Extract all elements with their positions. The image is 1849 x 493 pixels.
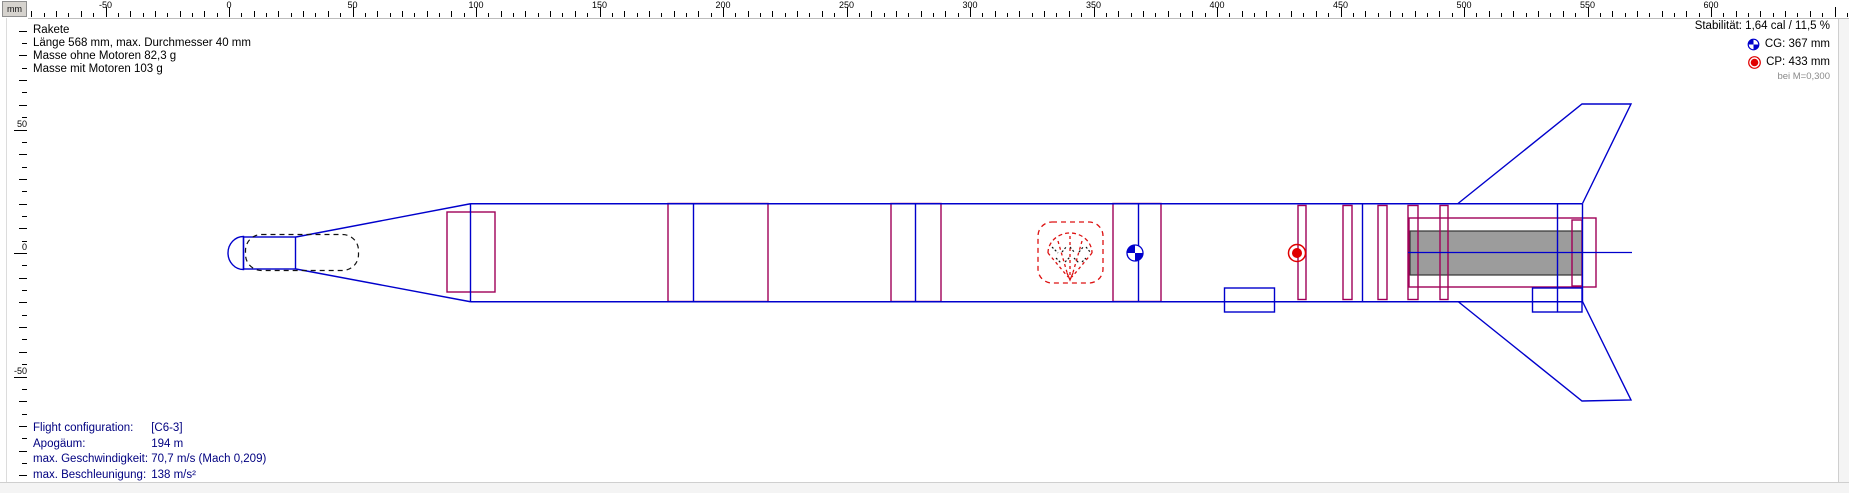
h-ruler-tick — [1637, 11, 1638, 17]
cp-legend-row: CP: 433 mm — [1695, 53, 1830, 71]
h-ruler-tick — [254, 11, 255, 17]
v-ruler-tick — [19, 451, 27, 452]
cp-value: CP: 433 mm — [1766, 56, 1830, 68]
h-ruler-label: 350 — [1077, 0, 1111, 10]
h-ruler-tick — [180, 11, 181, 17]
h-ruler-tick — [464, 13, 465, 17]
h-ruler-tick — [167, 13, 168, 17]
h-ruler-tick — [1612, 11, 1613, 17]
h-ruler-tick — [414, 13, 415, 17]
h-ruler-tick — [1513, 11, 1514, 17]
h-ruler-label: 50 — [336, 0, 370, 10]
h-ruler-tick — [192, 13, 193, 17]
cg-marker — [1127, 245, 1143, 261]
h-ruler-tick — [1748, 13, 1749, 17]
h-ruler-tick — [1081, 13, 1082, 17]
h-ruler-tick — [735, 13, 736, 17]
h-ruler-tick — [451, 11, 452, 17]
v-ruler-tick — [22, 414, 27, 415]
h-ruler-label: 0 — [212, 0, 246, 10]
h-ruler-label: 550 — [1571, 0, 1605, 10]
h-ruler-tick — [93, 13, 94, 17]
h-ruler-tick — [760, 13, 761, 17]
h-ruler-tick — [143, 13, 144, 17]
h-ruler-tick — [1192, 11, 1193, 17]
h-ruler-tick — [315, 13, 316, 17]
v-ruler-tick — [22, 315, 27, 316]
h-ruler-tick — [278, 11, 279, 17]
v-ruler-tick — [22, 389, 27, 390]
h-ruler-tick — [785, 13, 786, 17]
v-ruler-tick — [19, 80, 27, 81]
h-ruler-tick — [921, 11, 922, 17]
h-ruler-tick — [1427, 13, 1428, 17]
v-ruler-tick — [19, 204, 27, 205]
h-ruler-tick — [1353, 13, 1354, 17]
design-canvas[interactable] — [0, 0, 1849, 492]
h-ruler-tick — [402, 11, 403, 17]
tube-coupler-1[interactable] — [668, 204, 768, 302]
h-ruler-tick — [834, 13, 835, 17]
h-ruler-tick — [1069, 11, 1070, 17]
h-ruler-tick — [303, 11, 304, 17]
h-ruler-tick — [748, 11, 749, 17]
h-ruler-tick — [575, 11, 576, 17]
h-ruler-tick — [1476, 13, 1477, 17]
h-ruler-tick — [1452, 13, 1453, 17]
apogee-value: 194 m — [151, 438, 183, 450]
v-ruler-tick — [19, 228, 27, 229]
max-velocity-value: 70,7 m/s (Mach 0,209) — [151, 453, 266, 465]
h-ruler-label: 450 — [1324, 0, 1358, 10]
vertical-scrollbar-track[interactable] — [1838, 18, 1849, 482]
v-ruler-tick — [19, 278, 27, 279]
h-ruler-tick — [217, 13, 218, 17]
h-ruler-label: 300 — [953, 0, 987, 10]
h-ruler-tick — [1131, 13, 1132, 17]
v-ruler-tick — [22, 167, 27, 168]
flight-data-block: Flight configuration: [C6-3] Apogäum: 19… — [33, 421, 266, 483]
centering-ring-3[interactable] — [1378, 206, 1387, 300]
nose-cone-dashed-outline[interactable] — [246, 235, 359, 271]
h-ruler-tick — [377, 11, 378, 17]
flight-config-label: Flight configuration: — [33, 421, 148, 437]
fin-top[interactable] — [1458, 104, 1631, 204]
h-ruler-tick — [1415, 11, 1416, 17]
h-ruler-tick — [390, 13, 391, 17]
v-ruler-tick — [19, 31, 27, 32]
h-ruler-label: 400 — [1200, 0, 1234, 10]
h-ruler-tick — [1402, 13, 1403, 17]
h-ruler-tick — [241, 13, 242, 17]
cg-icon — [1747, 38, 1760, 51]
ruler-unit-label: mm — [2, 1, 27, 17]
h-ruler-tick — [1563, 11, 1564, 17]
h-ruler-tick — [1365, 11, 1366, 17]
vertical-ruler: 500-50 — [0, 18, 28, 482]
h-ruler-tick — [1760, 11, 1761, 17]
v-ruler-tick — [19, 426, 27, 427]
transition-cone[interactable] — [296, 204, 471, 302]
h-ruler-tick — [204, 11, 205, 17]
cp-marker — [1289, 245, 1306, 262]
h-ruler-tick — [525, 11, 526, 17]
h-ruler-tick — [674, 11, 675, 17]
h-ruler-label: 100 — [459, 0, 493, 10]
h-ruler-tick — [871, 11, 872, 17]
h-ruler-tick — [550, 11, 551, 17]
v-ruler-tick — [22, 216, 27, 217]
parachute[interactable] — [1038, 222, 1103, 283]
h-ruler-tick — [1662, 11, 1663, 17]
h-ruler-tick — [56, 11, 57, 17]
h-ruler-tick — [328, 11, 329, 17]
v-ruler-tick — [19, 302, 27, 303]
h-ruler-tick — [1699, 13, 1700, 17]
v-ruler-tick — [19, 55, 27, 56]
v-ruler-tick — [22, 68, 27, 69]
h-ruler-tick — [1143, 11, 1144, 17]
h-ruler-tick — [1007, 13, 1008, 17]
stability-legend: Stabilität: 1,64 cal / 11,5 % CG: 367 mm… — [1695, 20, 1830, 84]
rocket-drawing — [228, 104, 1632, 401]
h-ruler-label: 150 — [583, 0, 617, 10]
v-ruler-tick — [19, 401, 27, 402]
design-title: Rakete — [33, 24, 251, 37]
design-info-block: Rakete Länge 568 mm, max. Durchmesser 40… — [33, 24, 251, 76]
launch-lug-1[interactable] — [1225, 288, 1275, 312]
h-ruler-tick — [1242, 11, 1243, 17]
h-ruler-tick — [1056, 13, 1057, 17]
h-ruler-tick — [155, 11, 156, 17]
h-ruler-tick — [291, 13, 292, 17]
h-ruler-tick — [1526, 13, 1527, 17]
h-ruler-tick — [1032, 13, 1033, 17]
v-ruler-tick — [14, 253, 27, 254]
v-ruler-tick — [19, 352, 27, 353]
h-ruler-tick — [637, 13, 638, 17]
h-ruler-tick — [1736, 11, 1737, 17]
h-ruler-tick — [501, 11, 502, 17]
h-ruler-tick — [513, 13, 514, 17]
v-ruler-tick — [22, 43, 27, 44]
h-ruler-tick — [538, 13, 539, 17]
v-ruler-tick — [22, 191, 27, 192]
ruler-unit-box: mm — [0, 0, 28, 18]
parachute-shroud-lines — [1048, 236, 1092, 279]
h-ruler-tick — [1723, 13, 1724, 17]
h-ruler-tick — [1810, 11, 1811, 17]
h-ruler-tick — [365, 13, 366, 17]
h-ruler-label: 250 — [830, 0, 864, 10]
v-ruler-tick — [19, 105, 27, 106]
h-ruler-tick — [1019, 11, 1020, 17]
apogee-label: Apogäum: — [33, 437, 148, 453]
v-ruler-tick — [19, 475, 27, 476]
h-ruler-tick — [427, 11, 428, 17]
h-ruler-tick — [884, 13, 885, 17]
h-ruler-tick — [1118, 11, 1119, 17]
flight-config-value: [C6-3] — [151, 422, 182, 434]
fin-bottom[interactable] — [1458, 302, 1631, 402]
h-ruler-tick — [1773, 13, 1774, 17]
h-ruler-tick — [1254, 13, 1255, 17]
v-ruler-tick — [22, 339, 27, 340]
h-ruler-tick — [1674, 13, 1675, 17]
h-ruler-tick — [1316, 11, 1317, 17]
h-ruler-tick — [995, 11, 996, 17]
apogee-row: Apogäum: 194 m — [33, 437, 266, 453]
h-ruler-tick — [1649, 13, 1650, 17]
v-ruler-tick — [19, 327, 27, 328]
h-ruler-label: 500 — [1447, 0, 1481, 10]
v-ruler-tick — [14, 377, 27, 378]
v-ruler-tick — [22, 463, 27, 464]
h-ruler-tick — [859, 13, 860, 17]
h-ruler-tick — [1205, 13, 1206, 17]
h-ruler-tick — [1489, 11, 1490, 17]
h-ruler-tick — [488, 13, 489, 17]
h-ruler-tick — [982, 13, 983, 17]
h-ruler-tick — [686, 13, 687, 17]
h-ruler-tick — [587, 13, 588, 17]
h-ruler-tick — [809, 13, 810, 17]
h-ruler-tick — [439, 13, 440, 17]
h-ruler-tick — [908, 13, 909, 17]
h-ruler-tick — [1155, 13, 1156, 17]
h-ruler-label: 200 — [706, 0, 740, 10]
h-ruler-tick — [340, 13, 341, 17]
h-ruler-tick — [1785, 11, 1786, 17]
h-ruler-tick — [945, 11, 946, 17]
h-ruler-tick — [1378, 13, 1379, 17]
h-ruler-tick — [1168, 11, 1169, 17]
h-ruler-tick — [1625, 13, 1626, 17]
v-ruler-label: 0 — [1, 242, 27, 252]
shock-cord-marks — [1052, 246, 1091, 263]
h-ruler-tick — [624, 11, 625, 17]
h-ruler-tick — [1686, 11, 1687, 17]
h-ruler-tick — [1822, 13, 1823, 17]
cg-value: CG: 367 mm — [1765, 38, 1830, 50]
h-ruler-tick — [1538, 11, 1539, 17]
h-ruler-tick — [1390, 11, 1391, 17]
h-ruler-tick — [1550, 13, 1551, 17]
v-ruler-tick — [22, 92, 27, 93]
h-ruler-tick — [1291, 11, 1292, 17]
h-ruler-tick — [933, 13, 934, 17]
h-ruler-tick — [958, 13, 959, 17]
rocket-design-app: { "header": { "title": "Rakete", "info_l… — [0, 0, 1849, 492]
h-ruler-tick — [661, 13, 662, 17]
v-ruler-tick — [14, 130, 27, 131]
h-ruler-tick — [1501, 13, 1502, 17]
h-ruler-tick — [1229, 13, 1230, 17]
h-ruler-tick — [896, 11, 897, 17]
v-ruler-tick — [19, 179, 27, 180]
v-ruler-tick — [22, 290, 27, 291]
h-ruler-tick — [1044, 11, 1045, 17]
mach-note: bei M=0,300 — [1695, 71, 1830, 84]
h-ruler-tick — [711, 13, 712, 17]
flight-config-row: Flight configuration: [C6-3] — [33, 421, 266, 437]
h-ruler-tick — [649, 11, 650, 17]
h-ruler-tick — [1279, 13, 1280, 17]
h-ruler-tick — [1180, 13, 1181, 17]
max-acceleration-value: 138 m/s² — [151, 469, 196, 481]
h-ruler-tick — [1328, 13, 1329, 17]
h-ruler-tick — [612, 13, 613, 17]
max-velocity-row: max. Geschwindigkeit: 70,7 m/s (Mach 0,2… — [33, 452, 266, 468]
nose-shoulder-tube[interactable] — [244, 237, 296, 269]
h-ruler-label: -50 — [89, 0, 123, 10]
h-ruler-tick — [31, 11, 32, 17]
nose-tip[interactable] — [228, 237, 244, 270]
h-ruler-tick — [68, 13, 69, 17]
v-ruler-tick — [19, 154, 27, 155]
v-ruler-label: 50 — [1, 119, 27, 129]
h-ruler-tick — [1835, 7, 1836, 17]
max-acceleration-label: max. Beschleunigung: — [33, 468, 148, 484]
v-ruler-label: -50 — [1, 366, 27, 376]
stability-text: Stabilität: 1,64 cal / 11,5 % — [1695, 20, 1830, 35]
design-mass-empty-line: Masse ohne Motoren 82,3 g — [33, 50, 251, 63]
h-ruler-tick — [1106, 13, 1107, 17]
h-ruler-label: 600 — [1694, 0, 1728, 10]
h-ruler-tick — [1303, 13, 1304, 17]
h-ruler-tick — [797, 11, 798, 17]
horizontal-scrollbar-track[interactable] — [0, 482, 1849, 493]
h-ruler-tick — [1266, 11, 1267, 17]
h-ruler-tick — [1439, 11, 1440, 17]
cg-legend-row: CG: 367 mm — [1695, 35, 1830, 53]
h-ruler-tick — [1575, 13, 1576, 17]
v-ruler-tick — [22, 438, 27, 439]
h-ruler-tick — [130, 11, 131, 17]
h-ruler-tick — [1797, 13, 1798, 17]
h-ruler-tick — [562, 13, 563, 17]
design-length-line: Länge 568 mm, max. Durchmesser 40 mm — [33, 37, 251, 50]
max-velocity-label: max. Geschwindigkeit: — [33, 452, 148, 468]
h-ruler-tick — [118, 13, 119, 17]
v-ruler-tick — [22, 265, 27, 266]
h-ruler-tick — [698, 11, 699, 17]
centering-ring-2[interactable] — [1343, 206, 1352, 300]
h-ruler-tick — [822, 11, 823, 17]
design-mass-motor-line: Masse mit Motoren 103 g — [33, 63, 251, 76]
h-ruler-tick — [772, 11, 773, 17]
h-ruler-tick — [266, 13, 267, 17]
h-ruler-tick — [1847, 13, 1848, 17]
max-acceleration-row: max. Beschleunigung: 138 m/s² — [33, 468, 266, 484]
h-ruler-tick — [81, 11, 82, 17]
horizontal-ruler: -50050100150200250300350400450500550600 — [28, 0, 1849, 19]
h-ruler-tick — [1600, 13, 1601, 17]
cp-icon — [1748, 56, 1761, 69]
h-ruler-tick — [44, 13, 45, 17]
v-ruler-tick — [22, 142, 27, 143]
